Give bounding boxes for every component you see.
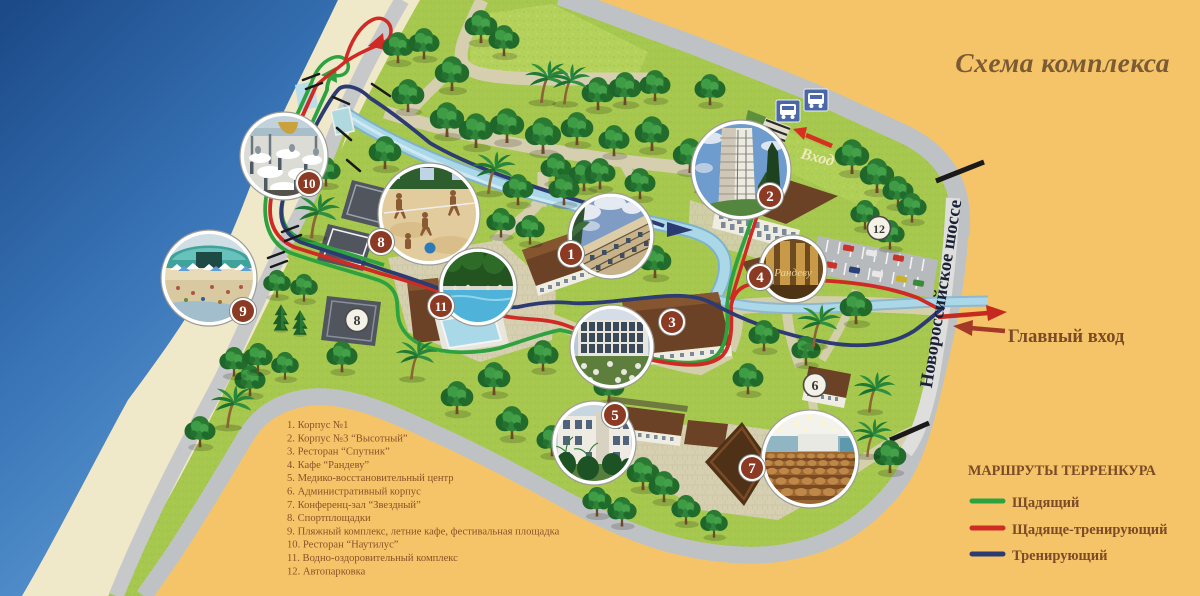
svg-text:3: 3 (668, 315, 676, 331)
svg-text:Щадящий: Щадящий (1012, 495, 1079, 511)
svg-text:4. Кафе “Рандеву”: 4. Кафе “Рандеву” (287, 460, 369, 471)
svg-text:11. Водно-оздоровительный комп: 11. Водно-оздоровительный комплекс (287, 553, 458, 564)
svg-text:Щадяще-тренирующий: Щадяще-тренирующий (1012, 522, 1168, 538)
svg-text:8: 8 (377, 235, 385, 251)
svg-text:10: 10 (303, 176, 316, 191)
svg-text:3. Ресторан “Спутник”: 3. Ресторан “Спутник” (287, 447, 390, 458)
svg-text:5: 5 (611, 408, 619, 424)
svg-text:7. Конференц-зал “Звездный”: 7. Конференц-зал “Звездный” (287, 500, 421, 511)
svg-text:12: 12 (873, 222, 885, 236)
svg-text:2: 2 (766, 189, 774, 205)
svg-text:9: 9 (239, 304, 247, 320)
svg-text:Рандеву: Рандеву (773, 267, 812, 279)
svg-text:Тренирующий: Тренирующий (1012, 548, 1107, 564)
svg-text:4: 4 (756, 270, 764, 286)
svg-text:5. Медико-восстановительный це: 5. Медико-восстановительный центр (287, 473, 454, 484)
svg-text:6: 6 (812, 379, 819, 394)
svg-text:Главный вход: Главный вход (1008, 327, 1125, 347)
svg-text:9. Пляжный комплекс, летние ка: 9. Пляжный комплекс, летние кафе, фестив… (287, 526, 560, 537)
svg-text:6. Административный корпус: 6. Административный корпус (287, 487, 421, 498)
svg-text:8: 8 (354, 314, 361, 329)
svg-text:10. Ресторан “Наутилус”: 10. Ресторан “Наутилус” (287, 540, 399, 551)
svg-text:Схема комплекса: Схема комплекса (955, 47, 1170, 78)
svg-text:МАРШРУТЫ ТЕРРЕНКУРА: МАРШРУТЫ ТЕРРЕНКУРА (968, 463, 1157, 479)
svg-text:7: 7 (748, 461, 756, 477)
svg-text:1. Корпус №1: 1. Корпус №1 (287, 420, 348, 431)
svg-text:1: 1 (567, 247, 575, 263)
svg-text:2. Корпус №3 “Высотный”: 2. Корпус №3 “Высотный” (287, 433, 408, 444)
svg-text:12. Автопарковка: 12. Автопарковка (287, 566, 366, 577)
svg-text:11: 11 (435, 299, 447, 314)
svg-text:8. Спортплощадки: 8. Спортплощадки (287, 513, 371, 524)
